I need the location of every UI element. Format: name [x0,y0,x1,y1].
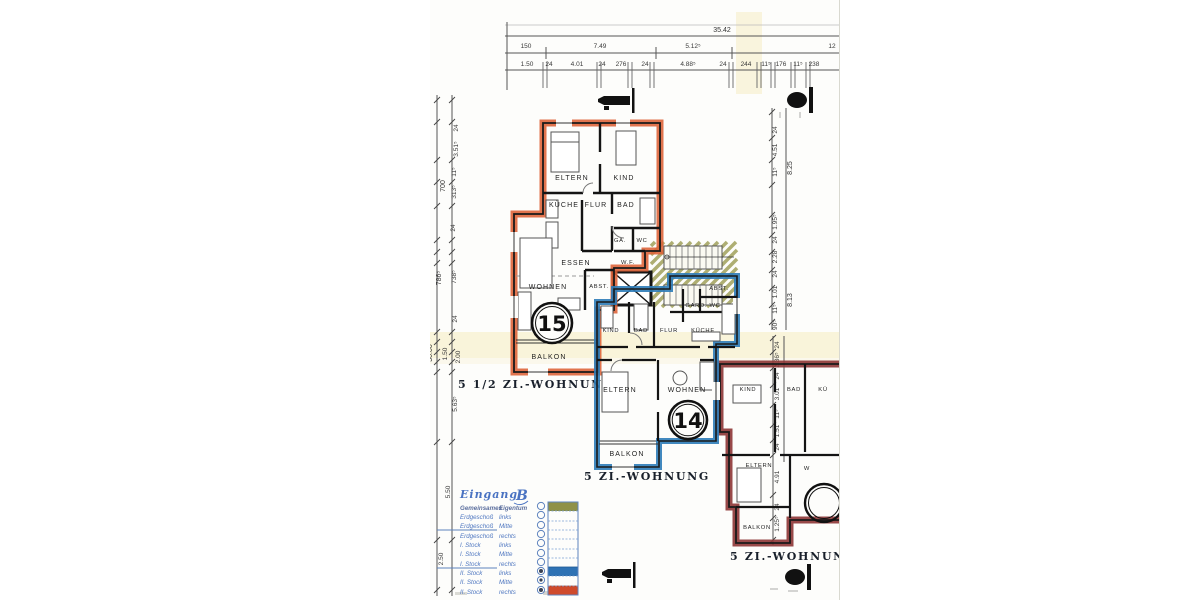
dim-total: 8.25 [787,161,794,175]
section-marker-right-top [780,87,813,118]
dim-detail: 738⁵ [451,270,458,284]
legend-row-value: links [499,514,511,521]
section-marker-bottom [602,562,636,588]
legend-swatch [548,586,578,595]
legend-swatch [548,521,578,530]
legend-row-label: I. Stock [460,561,482,568]
legend-swatch-column [548,502,578,595]
room-label-wohnen-13: W [804,466,810,472]
room-label-abst-14: ABST. [709,286,729,292]
dim-seg: 12 [828,43,836,50]
legend-swatch [548,558,578,567]
top-dimension-block: 35.42 150 7.49 5.12⁵ 12 1.50 24 4.01 24 … [505,22,839,90]
dim-detail: 4.51 [772,143,779,156]
legend-row-value: links [499,570,511,577]
room-label-balkon-15: BALKON [532,354,567,361]
room-label-kueche-15: KÜCHE [549,201,579,209]
dim-detail: 24 [598,61,606,68]
dim-detail: 1.50 [521,61,534,68]
dim-detail: 90⁵ [772,320,779,330]
legend-row-label: Erdgeschoß [460,523,494,530]
dim-seg: 5.12⁵ [685,43,701,50]
room-label-wf-15: W.F. [621,260,635,266]
dim-detail: 1.95⁵ [772,214,779,230]
unit-15-number: 15 [537,312,566,336]
legend-row-value: Mitte [499,551,513,558]
dim-detail: 24 [719,61,727,68]
legend-swatch [548,530,578,539]
dim-seg: 150 [521,43,532,50]
stair-flight-upper [664,246,722,269]
room-label-flur-14: FLUR [660,328,678,334]
unit-13-number-circle [805,484,839,522]
dim-detail: 24 [774,341,781,349]
dim-detail: 4.91 [774,470,781,483]
dim-detail: 24 [772,236,779,244]
legend-entrance-letter: B [515,488,528,504]
legend-row-label: Erdgeschoß [460,514,494,521]
dim-detail: 24 [450,224,457,232]
room-label-abst-15: ABST. [589,284,609,290]
legend-title: Eingang [459,488,518,501]
room-label-kind-13: KIND [740,387,757,393]
room-label-kind-14: KIND [603,328,620,334]
legend-row-label: II. Stock [460,589,483,596]
dim-detail: 24 [641,61,649,68]
room-label-flur-15: FLUR [585,202,608,209]
dim-detail: 244 [741,61,752,68]
unit-15-title: 5 1/2 ZI.-WOHNUNG [458,378,614,391]
room-label-balkon-13: BALKON [743,525,771,531]
legend-swatch [548,567,578,576]
room-label-wc-15: WC [636,238,647,244]
legend-row-value: rechts [499,589,516,596]
room-label-eltern-13: ELTERN [746,463,773,469]
room-label-bad-15: BAD [617,202,635,209]
dim-detail: 238 [809,61,820,68]
legend-swatch [548,576,578,586]
dim-detail: 24 [545,61,553,68]
dim-total-top: 35.42 [713,27,731,34]
dim-total: 30.00 [430,344,434,362]
dim-detail: 11⁵ [793,61,803,68]
dim-detail: 176 [776,61,787,68]
legend-row-value: Mitte [499,523,513,530]
room-label-eltern-14: ELTERN [603,387,637,394]
dim-detail: 11⁵ [451,167,458,177]
dim-detail: 313⁵ [451,185,458,199]
unit-14-number: 14 [673,409,702,433]
legend-row-label: Gemeinsames [460,505,503,512]
legend-row-label: I. Stock [460,551,482,558]
room-label-eltern-15: ELTERN [555,175,589,182]
room-label-ga-15: GA. [614,238,626,244]
legend-row-value: Mitte [499,579,513,586]
legend-swatch [548,502,578,511]
dim-detail: 24 [772,126,779,134]
dim-total: 700 [440,180,447,192]
legend-row-label: I. Stock [460,542,482,549]
dim-detail: 2.28 [772,250,779,263]
legend-swatch [548,511,578,521]
room-label-wohnen-14: WOHNEN [668,387,707,394]
dim-detail: 4.88⁵ [680,61,696,68]
legend-row-label: II. Stock [460,579,483,586]
legend-row-label: II. Stock [460,570,483,577]
dim-detail: 276 [616,61,627,68]
room-label-bad-14: BAD [634,328,648,334]
dim-seg: 7.49 [594,43,607,50]
scanned-floor-plan: 35.42 150 7.49 5.12⁵ 12 1.50 24 4.01 24 … [0,0,1200,600]
dim-detail: 24 [452,315,459,323]
legend-circles [537,502,544,593]
room-label-bad-13: BAD [787,387,801,393]
dim-detail: 5.63⁵ [452,396,459,412]
dim-detail: 11⁵ [772,167,779,177]
plan-sheet: 35.42 150 7.49 5.12⁵ 12 1.50 24 4.01 24 … [430,0,840,600]
room-label-wohnen-15: WOHNEN [529,284,568,291]
dim-detail: 24 [772,270,779,278]
section-marker-top [598,88,635,113]
dim-detail: 2.00 [455,350,462,363]
dim-detail: 11⁵ [761,61,771,68]
dim-detail: 2.50 [438,552,445,565]
dim-detail: 1.50 [442,347,449,360]
room-label-essen-15: ESSEN [561,260,590,267]
room-label-kueche-14: KÜCHE [691,327,715,334]
dim-detail: 24 [453,124,460,132]
dim-detail: 4.01 [571,61,584,68]
unit-14-title: 5 ZI.-WOHNUNG [584,470,710,483]
dim-detail: 3.51⁵ [453,141,460,157]
unit-13-title: 5 ZI.-WOHNUNG [730,550,839,563]
legend: Eingang B Gemeinsames Eigentum Erdgescho… [437,488,578,596]
furniture [733,385,761,502]
dim-detail: 1.25⁵ [774,516,781,532]
room-label-balkon-14: BALKON [610,451,645,458]
legend-swatch [548,549,578,558]
dim-total: 8.13 [787,293,794,307]
legend-row-value: rechts [499,561,516,568]
legend-swatch [548,539,578,549]
room-label-gard-wc-14: GARD. WC [685,303,720,309]
legend-row-value: rechts [499,533,516,540]
dim-detail: 5.50 [445,485,452,498]
dim-detail: 11⁵ [772,304,779,314]
dim-detail: 1.01 [772,285,779,298]
section-marker-right-bottom [770,564,811,591]
legend-row-value: links [499,542,511,549]
dim-total: 786⁵ [436,271,443,286]
room-label-kind-15: KIND [613,175,634,182]
legend-row-value: Eigentum [499,505,528,512]
room-label-kueche-13: KÜ [818,386,827,393]
legend-row-label: Erdgeschoß [460,533,494,540]
